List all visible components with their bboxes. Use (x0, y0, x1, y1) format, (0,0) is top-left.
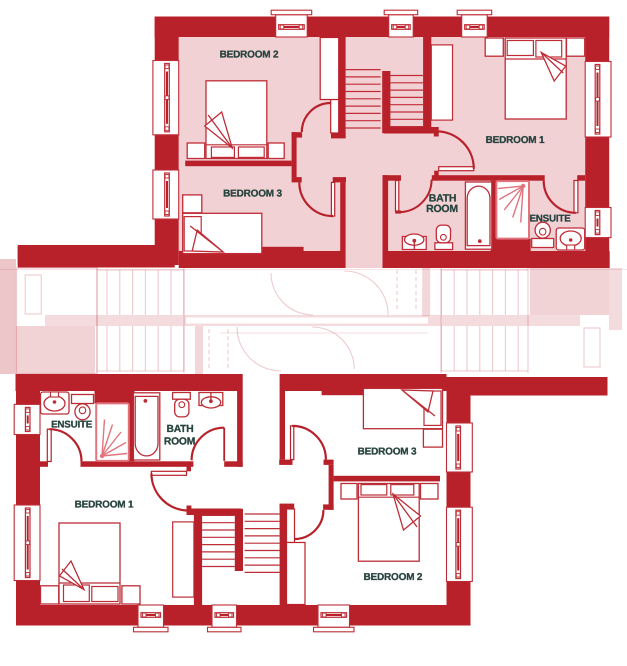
svg-text:BEDROOM 2: BEDROOM 2 (364, 572, 423, 583)
svg-text:BEDROOM 2: BEDROOM 2 (220, 50, 279, 61)
svg-text:ENSUITE: ENSUITE (529, 214, 571, 225)
svg-text:BEDROOM 1: BEDROOM 1 (486, 135, 545, 146)
svg-text:BEDROOM 1: BEDROOM 1 (75, 500, 134, 511)
svg-text:BATH: BATH (166, 424, 193, 435)
svg-text:ROOM: ROOM (426, 203, 458, 215)
svg-text:BEDROOM 3: BEDROOM 3 (358, 447, 417, 458)
svg-text:BEDROOM 3: BEDROOM 3 (223, 189, 282, 200)
svg-text:ENSUITE: ENSUITE (51, 420, 93, 431)
svg-text:ROOM: ROOM (164, 437, 195, 448)
